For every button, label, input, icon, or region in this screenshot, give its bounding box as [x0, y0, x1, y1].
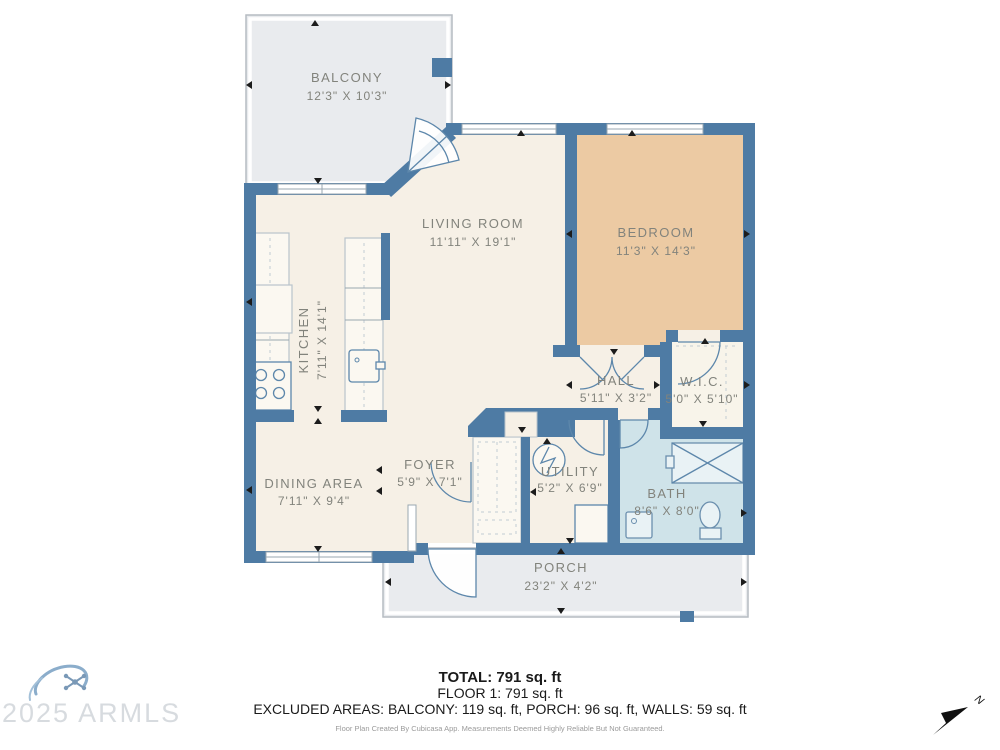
north-arrow-icon: N — [933, 693, 986, 735]
room-dimensions: 8'6" X 8'0" — [634, 504, 699, 518]
room-dimensions: 11'11" X 19'1" — [430, 235, 517, 249]
armls-watermark: 2025 ARMLS — [2, 666, 181, 728]
bathtub — [666, 443, 743, 483]
room-dimensions: 11'3" X 14'3" — [616, 244, 696, 258]
bedroom-floor — [577, 135, 743, 345]
room-label: FOYER — [404, 457, 456, 472]
total-area-text: TOTAL: 791 sq. ft — [439, 669, 562, 686]
room-label: KITCHEN — [296, 307, 311, 374]
room-label: BEDROOM — [618, 225, 695, 240]
washer — [575, 505, 608, 543]
balcony-column — [432, 58, 452, 77]
foyer-closet — [473, 437, 521, 543]
room-label: BALCONY — [311, 70, 383, 85]
armls-logo-icon — [30, 666, 87, 700]
room-label: LIVING ROOM — [422, 216, 524, 231]
north-label: N — [972, 693, 986, 707]
room-dimensions: 5'0" X 5'10" — [665, 392, 738, 406]
room-dimensions: 5'2" X 6'9" — [537, 481, 602, 495]
room-dimensions: 7'11" X 14'1" — [315, 300, 329, 380]
room-dimensions: 5'11" X 3'2" — [580, 391, 652, 405]
room-dimensions: 23'2" X 4'2" — [524, 579, 597, 593]
room-label: PORCH — [534, 560, 588, 575]
dining-half-wall — [408, 505, 416, 551]
porch-column — [680, 611, 694, 622]
room-dimensions: 7'11" X 9'4" — [278, 494, 350, 508]
disclaimer-text: Floor Plan Created By Cubicasa App. Meas… — [335, 724, 664, 733]
room-label: UTILITY — [541, 464, 599, 479]
watermark-text: 2025 ARMLS — [2, 698, 181, 728]
room-label: HALL — [597, 373, 635, 388]
area-summary: TOTAL: 791 sq. ft FLOOR 1: 791 sq. ft EX… — [253, 669, 746, 733]
kitchen-sink — [349, 350, 385, 382]
floor-area-text: FLOOR 1: 791 sq. ft — [437, 685, 562, 701]
floor-plan-page: BALCONY 12'3" X 10'3" LIVING ROOM 11'11"… — [0, 0, 1000, 750]
room-label: BATH — [647, 486, 686, 501]
toilet — [700, 502, 721, 539]
room-label: W.I.C. — [680, 374, 724, 389]
excluded-areas-text: EXCLUDED AREAS: BALCONY: 119 sq. ft, POR… — [253, 701, 746, 717]
room-label: DINING AREA — [264, 476, 363, 491]
room-dimensions: 12'3" X 10'3" — [307, 89, 388, 103]
room-dimensions: 5'9" X 7'1" — [397, 475, 462, 489]
floor-plan-canvas: BALCONY 12'3" X 10'3" LIVING ROOM 11'11"… — [0, 0, 1000, 750]
